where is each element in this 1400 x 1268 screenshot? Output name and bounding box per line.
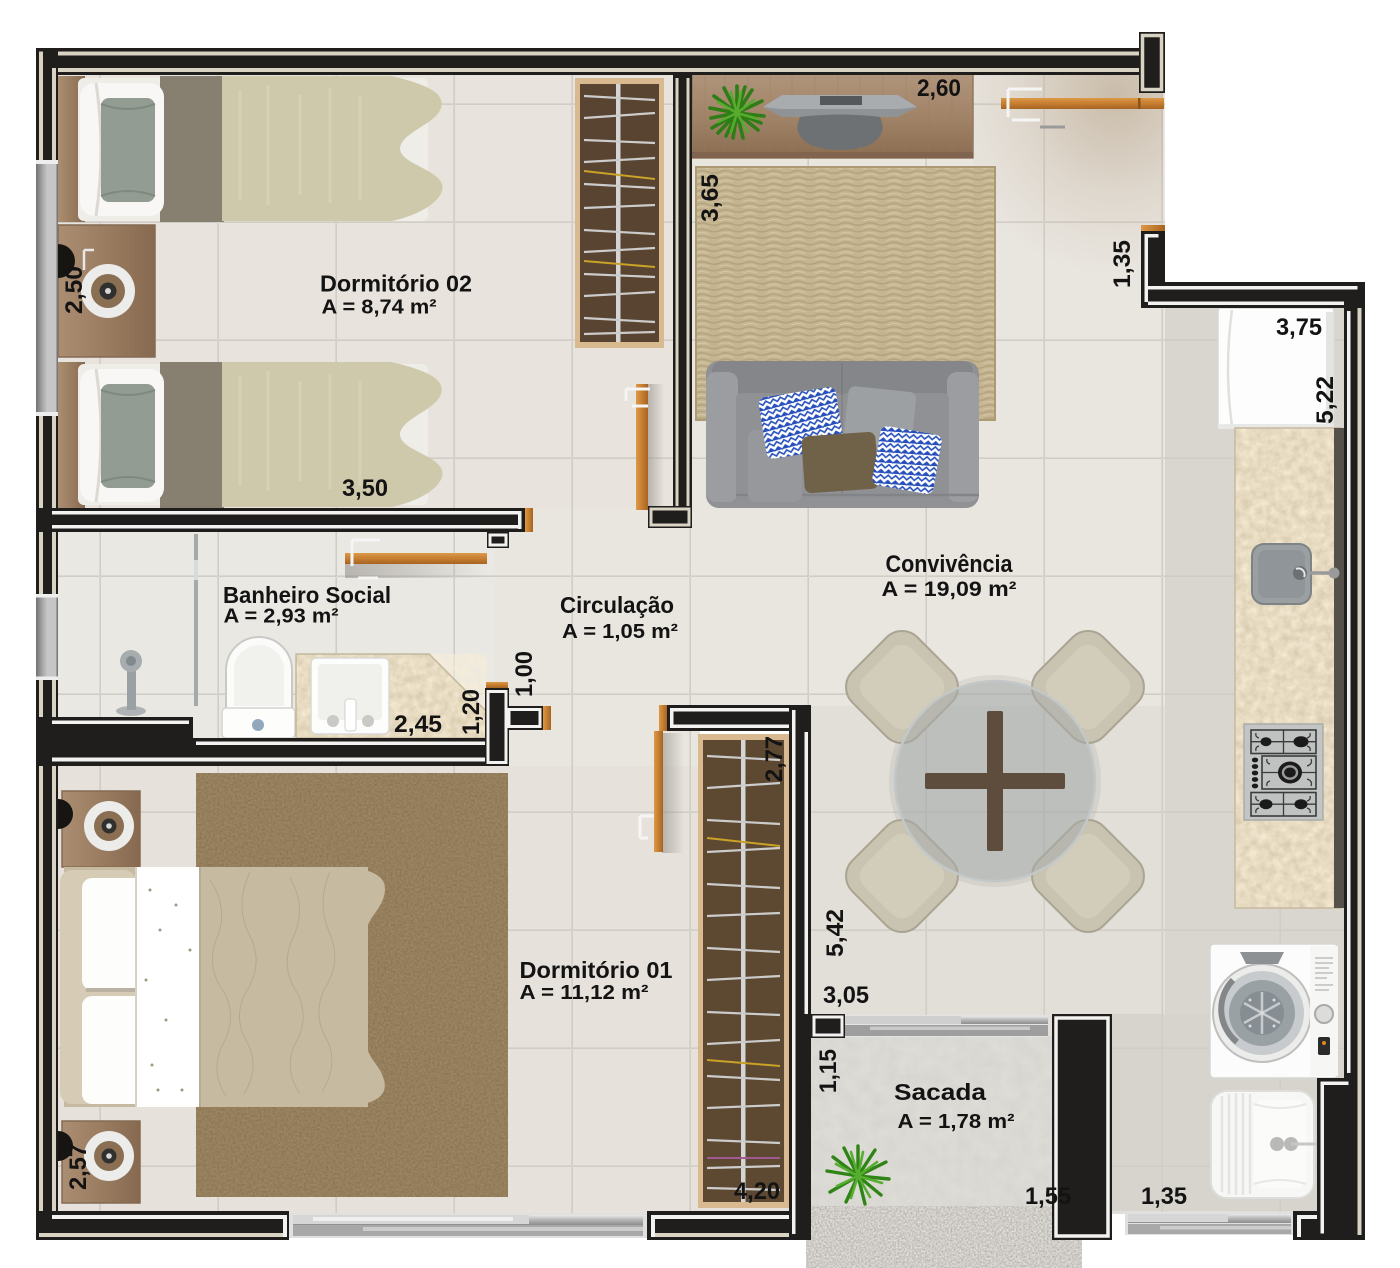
svg-text:1,35: 1,35 — [1141, 1183, 1187, 1210]
svg-text:5,42: 5,42 — [822, 909, 849, 957]
svg-text:3,75: 3,75 — [1276, 314, 1322, 341]
svg-text:Dormitório 02: Dormitório 02 — [320, 271, 472, 297]
svg-text:A = 11,12 m²: A = 11,12 m² — [520, 982, 649, 1004]
svg-text:4,20: 4,20 — [734, 1178, 780, 1205]
svg-text:Circulação: Circulação — [560, 592, 674, 618]
svg-text:A = 2,93 m²: A = 2,93 m² — [224, 606, 339, 628]
svg-text:3,65: 3,65 — [697, 174, 724, 222]
svg-text:2,77: 2,77 — [761, 736, 788, 782]
svg-text:1,20: 1,20 — [458, 689, 485, 735]
svg-text:A = 19,09 m²: A = 19,09 m² — [882, 578, 1017, 601]
svg-text:5,22: 5,22 — [1312, 376, 1339, 424]
svg-text:Convivência: Convivência — [886, 551, 1013, 578]
svg-text:2,50: 2,50 — [61, 266, 88, 314]
svg-text:2,45: 2,45 — [394, 711, 442, 738]
svg-text:1,55: 1,55 — [1025, 1183, 1071, 1210]
svg-text:1,15: 1,15 — [815, 1049, 842, 1093]
svg-text:A = 1,05 m²: A = 1,05 m² — [562, 621, 678, 643]
svg-text:1,00: 1,00 — [511, 651, 538, 697]
svg-text:Sacada: Sacada — [894, 1079, 987, 1105]
svg-text:Dormitório 01: Dormitório 01 — [520, 957, 673, 983]
svg-text:3,05: 3,05 — [823, 982, 869, 1009]
svg-text:3,50: 3,50 — [342, 475, 388, 502]
svg-text:2,57: 2,57 — [65, 1144, 92, 1190]
svg-text:1,35: 1,35 — [1109, 240, 1136, 288]
svg-text:Banheiro Social: Banheiro Social — [223, 582, 391, 608]
svg-text:A = 1,78 m²: A = 1,78 m² — [898, 1111, 1015, 1133]
svg-text:A = 8,74 m²: A = 8,74 m² — [322, 297, 437, 319]
svg-text:2,60: 2,60 — [917, 75, 961, 102]
